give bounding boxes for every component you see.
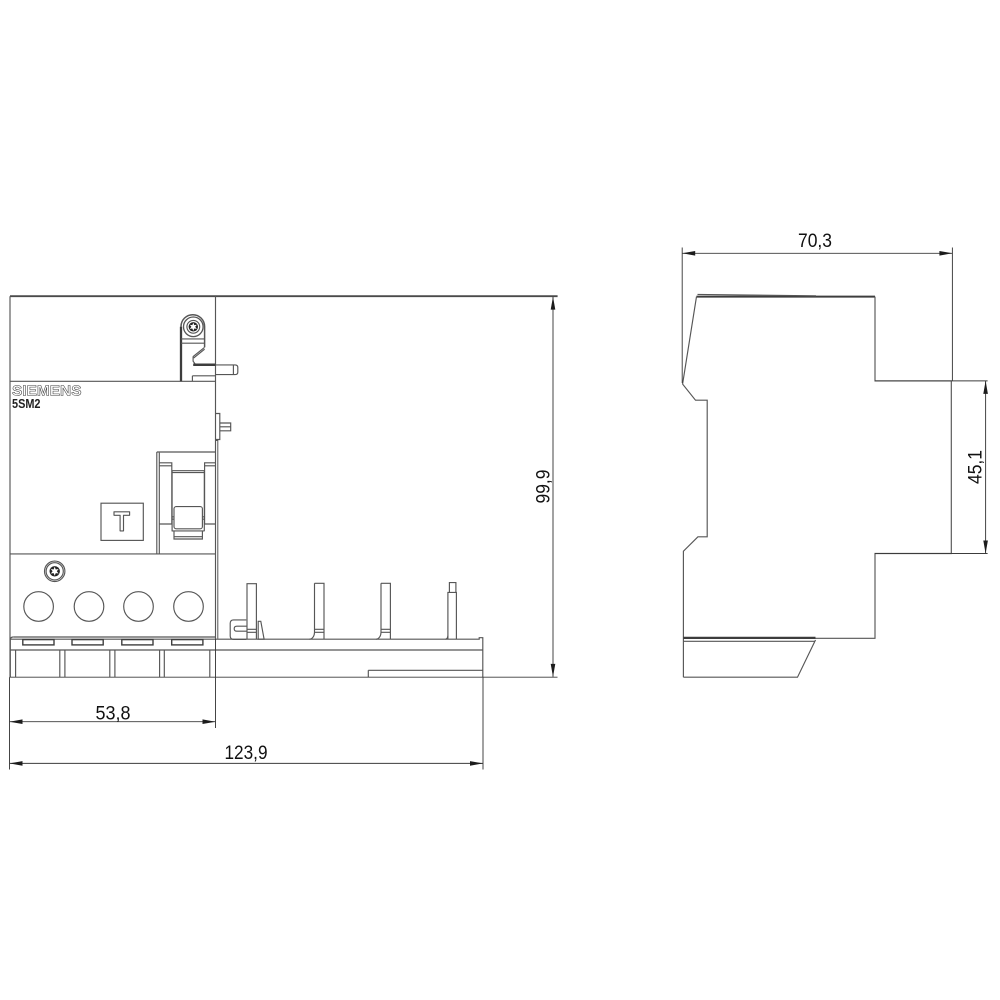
svg-text:53,8: 53,8 [96,704,131,725]
svg-text:70,3: 70,3 [798,231,832,252]
svg-text:5SM2: 5SM2 [12,396,41,411]
svg-text:45,1: 45,1 [966,450,987,484]
svg-text:123,9: 123,9 [225,743,268,764]
svg-text:99,9: 99,9 [534,470,555,504]
